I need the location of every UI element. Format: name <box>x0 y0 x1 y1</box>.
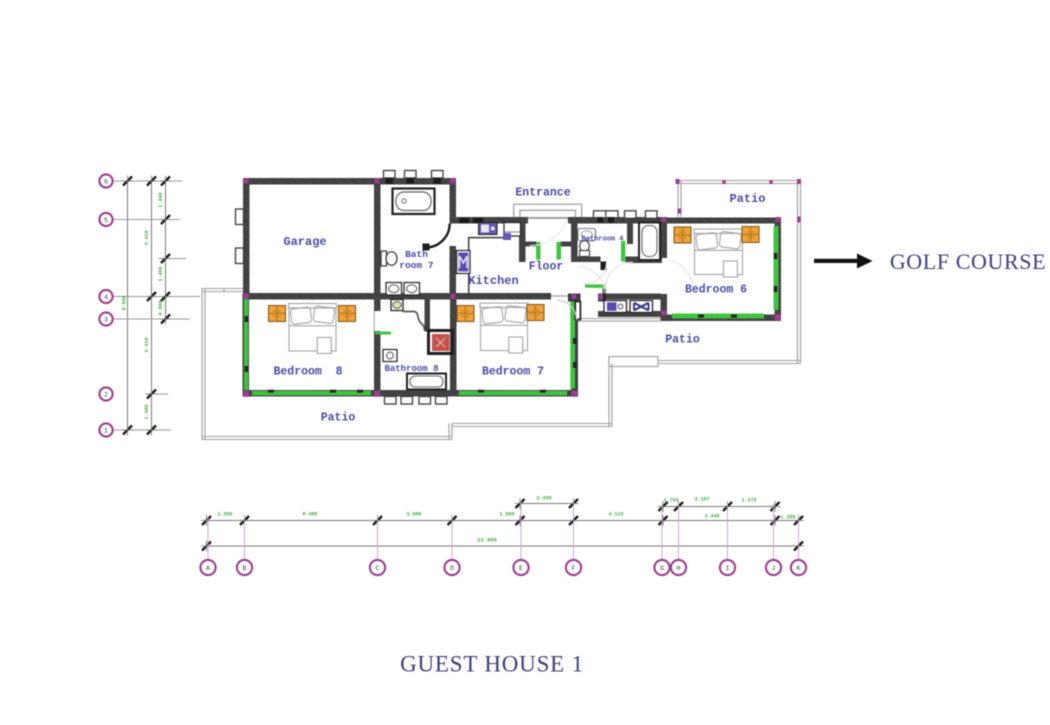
svg-text:Entrance: Entrance <box>515 187 570 200</box>
svg-text:Bath: Bath <box>405 249 428 260</box>
svg-text:23.900: 23.900 <box>477 537 497 544</box>
svg-text:Garage: Garage <box>283 235 326 249</box>
svg-text:F: F <box>572 565 576 572</box>
svg-text:6: 6 <box>104 178 108 185</box>
svg-text:Bedroom 7: Bedroom 7 <box>482 366 544 379</box>
svg-text:Patio: Patio <box>665 334 700 347</box>
svg-text:1.400: 1.400 <box>158 192 164 207</box>
svg-text:G: G <box>660 565 664 572</box>
svg-text:GUEST HOUSE 1: GUEST HOUSE 1 <box>400 652 584 677</box>
svg-text:1.895: 1.895 <box>499 512 514 518</box>
svg-text:B: B <box>243 565 247 572</box>
svg-text:3: 3 <box>104 316 108 323</box>
svg-text:1.590: 1.590 <box>217 512 232 518</box>
svg-text:5: 5 <box>104 217 108 224</box>
svg-text:room 7: room 7 <box>399 260 434 271</box>
svg-text:3.445: 3.445 <box>704 514 719 520</box>
svg-text:2.107: 2.107 <box>694 497 709 503</box>
svg-text:1.703: 1.703 <box>663 498 678 504</box>
svg-text:Floor: Floor <box>529 261 564 274</box>
svg-text:I: I <box>726 565 730 572</box>
svg-text:K: K <box>797 565 801 572</box>
svg-text:8.485: 8.485 <box>302 512 317 518</box>
svg-text:GOLF COURSE: GOLF COURSE <box>890 249 1046 274</box>
svg-text:4.410: 4.410 <box>144 230 150 245</box>
svg-text:4.115: 4.115 <box>608 512 623 518</box>
svg-text:1.400: 1.400 <box>144 404 150 419</box>
svg-text:0.800: 0.800 <box>158 300 164 315</box>
svg-text:1: 1 <box>104 427 108 434</box>
svg-text:J: J <box>772 565 776 572</box>
svg-text:1.400: 1.400 <box>158 266 164 281</box>
svg-text:Bathroom 4: Bathroom 4 <box>581 236 623 244</box>
svg-text:D: D <box>450 565 454 572</box>
svg-text:Patio: Patio <box>729 192 765 206</box>
svg-text:1.355: 1.355 <box>780 515 795 521</box>
svg-text:1.275: 1.275 <box>741 498 756 504</box>
svg-text:4.410: 4.410 <box>144 337 150 352</box>
svg-text:Patio: Patio <box>321 412 356 425</box>
svg-text:H: H <box>677 565 681 572</box>
svg-text:Bedroom 8: Bedroom 8 <box>273 366 342 379</box>
svg-text:Bathroom 8: Bathroom 8 <box>384 364 438 374</box>
svg-text:2: 2 <box>104 391 108 398</box>
svg-text:9.500: 9.500 <box>122 295 128 310</box>
svg-text:Bedroom 6: Bedroom 6 <box>685 284 747 297</box>
svg-text:A: A <box>206 565 210 572</box>
svg-text:4: 4 <box>104 294 108 301</box>
svg-text:C: C <box>376 565 380 572</box>
svg-text:3.080: 3.080 <box>406 512 421 518</box>
svg-text:Kitchen: Kitchen <box>468 274 518 288</box>
svg-text:2.465: 2.465 <box>536 496 551 502</box>
svg-text:E: E <box>519 565 523 572</box>
